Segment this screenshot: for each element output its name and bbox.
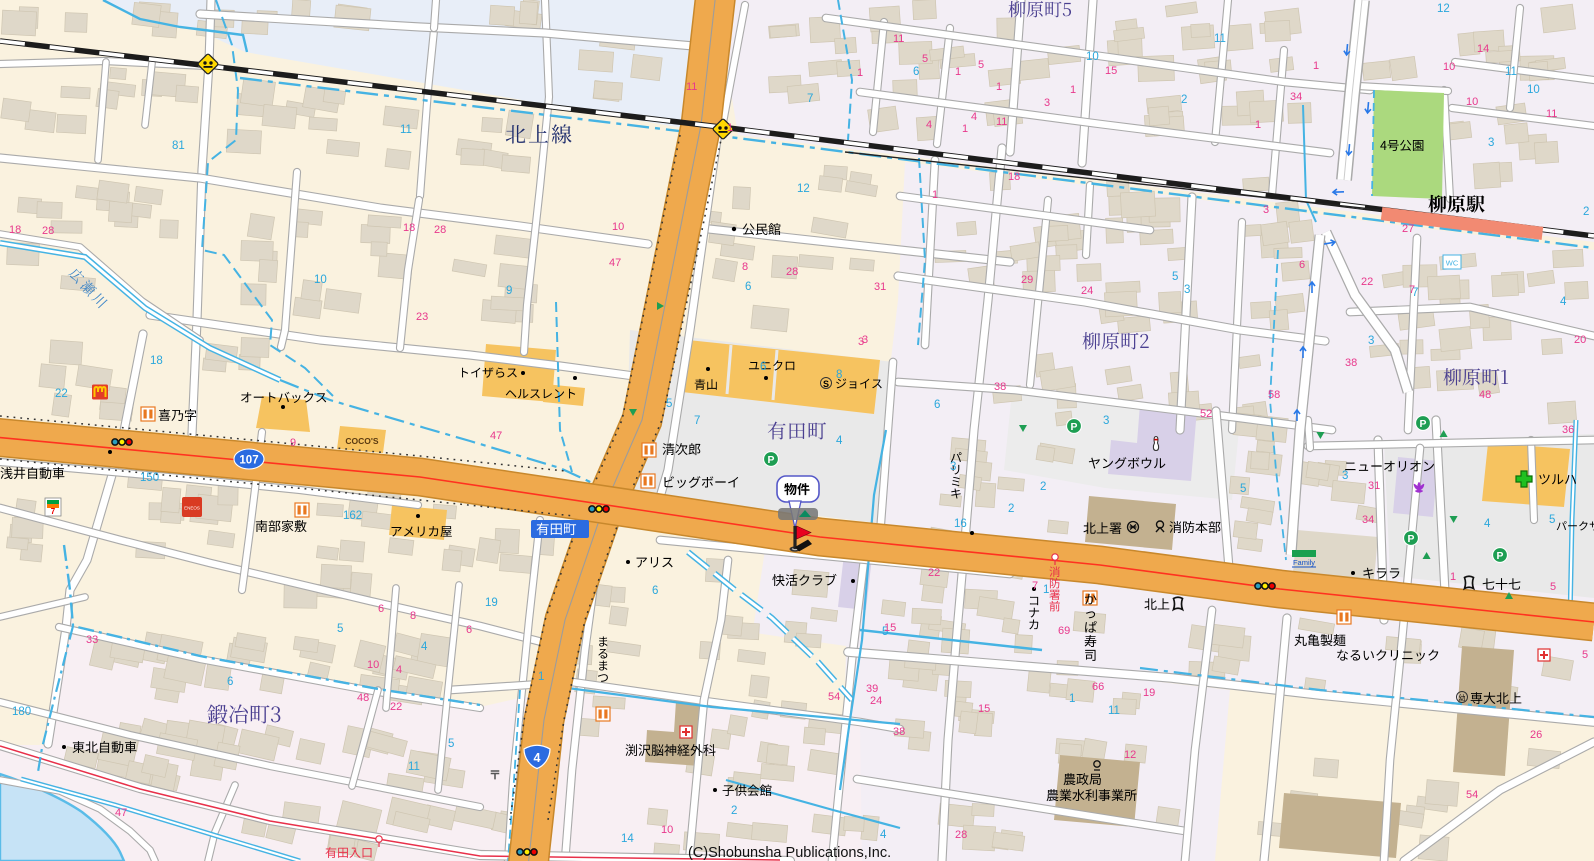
svg-text:31: 31 [1368,480,1380,492]
svg-text:11: 11 [996,116,1007,128]
svg-text:5: 5 [1240,483,1246,495]
svg-text:107: 107 [239,455,258,467]
svg-text:7: 7 [694,415,700,427]
svg-text:52: 52 [1200,408,1212,420]
svg-text:5: 5 [1172,271,1178,283]
svg-text:7: 7 [1032,580,1038,592]
svg-text:18: 18 [403,222,415,234]
svg-text:48: 48 [357,692,369,704]
svg-text:6: 6 [1299,259,1305,271]
svg-text:5: 5 [922,53,928,65]
svg-text:2: 2 [1008,503,1014,515]
svg-text:4: 4 [836,435,843,447]
svg-text:1: 1 [538,671,544,683]
svg-text:22: 22 [928,567,940,579]
svg-text:3: 3 [1044,97,1050,109]
svg-text:22: 22 [1361,276,1373,288]
svg-text:4: 4 [534,751,541,765]
svg-text:19: 19 [1143,687,1155,699]
svg-text:8: 8 [410,610,416,622]
svg-text:81: 81 [172,140,185,152]
svg-text:3: 3 [950,461,956,473]
svg-text:1: 1 [932,189,938,201]
svg-text:22: 22 [55,388,68,400]
svg-text:47: 47 [609,257,621,269]
svg-text:3: 3 [1342,470,1348,482]
svg-text:10: 10 [1443,61,1455,73]
svg-text:1: 1 [962,123,968,135]
svg-text:28: 28 [42,225,54,237]
svg-text:1: 1 [1070,84,1076,96]
svg-text:1: 1 [727,122,733,134]
svg-text:7: 7 [807,93,813,105]
svg-text:(C)Shobunsha Publications,Inc.: (C)Shobunsha Publications,Inc. [688,845,891,861]
svg-text:10: 10 [367,659,379,671]
svg-text:6: 6 [745,281,751,293]
svg-text:6: 6 [913,66,919,78]
svg-text:54: 54 [828,691,840,703]
svg-text:P: P [1408,534,1415,545]
svg-text:34: 34 [1290,91,1302,103]
svg-text:Family: Family [1293,558,1315,567]
svg-text:24: 24 [1081,285,1093,297]
svg-text:5: 5 [666,398,672,410]
svg-text:1: 1 [955,66,961,78]
svg-text:19: 19 [485,597,498,609]
svg-text:54: 54 [1466,789,1478,801]
svg-text:9: 9 [290,437,296,449]
svg-text:18: 18 [150,355,163,367]
svg-text:11: 11 [686,81,697,93]
svg-text:162: 162 [343,510,362,522]
svg-text:6: 6 [466,624,472,636]
svg-text:34: 34 [1362,514,1374,526]
svg-text:11: 11 [1546,108,1557,120]
svg-text:WC: WC [1446,259,1459,268]
svg-text:27: 27 [1402,223,1414,235]
svg-text:66: 66 [1092,681,1104,693]
svg-text:38: 38 [1345,357,1357,369]
svg-text:11: 11 [1108,705,1120,717]
svg-text:〒: 〒 [489,768,501,782]
svg-text:38: 38 [994,381,1006,393]
svg-text:8: 8 [742,261,748,273]
svg-text:1: 1 [1450,571,1456,583]
svg-text:12: 12 [1437,3,1450,15]
svg-text:39: 39 [866,683,878,695]
svg-text:2: 2 [1181,94,1187,106]
svg-text:5: 5 [1582,649,1588,661]
svg-text:11: 11 [400,124,412,136]
svg-text:10: 10 [1466,96,1478,108]
svg-text:9: 9 [506,285,512,297]
svg-text:P: P [1420,419,1427,430]
svg-text:16: 16 [954,518,967,530]
svg-text:3: 3 [1103,415,1109,427]
svg-text:11: 11 [1214,33,1226,45]
svg-text:11: 11 [893,33,904,45]
svg-text:69: 69 [1058,625,1070,637]
svg-text:4: 4 [971,111,977,123]
svg-text:20: 20 [1574,334,1586,346]
svg-text:15: 15 [884,622,896,634]
svg-text:8: 8 [836,369,842,381]
svg-text:1: 1 [857,67,863,79]
svg-text:6: 6 [934,399,940,411]
svg-text:1: 1 [1043,584,1049,596]
svg-text:10: 10 [314,274,327,286]
svg-text:2: 2 [1583,206,1589,218]
svg-text:5: 5 [978,59,984,71]
svg-text:26: 26 [1530,729,1542,741]
svg-text:5: 5 [1550,581,1556,593]
svg-text:5: 5 [448,738,454,750]
svg-text:38: 38 [893,726,905,738]
svg-text:3: 3 [1184,284,1190,296]
svg-text:6: 6 [378,603,384,615]
svg-text:3: 3 [862,334,868,346]
svg-text:2: 2 [1040,481,1046,493]
svg-text:4: 4 [1560,296,1567,308]
svg-text:1: 1 [1255,119,1261,131]
svg-text:18: 18 [1008,171,1020,183]
svg-text:3: 3 [1488,137,1494,149]
svg-text:6: 6 [227,676,233,688]
svg-text:18: 18 [9,224,21,236]
svg-text:1: 1 [1069,693,1075,705]
svg-text:29: 29 [1021,274,1033,286]
svg-text:4: 4 [396,664,402,676]
svg-text:6: 6 [652,585,658,597]
svg-text:48: 48 [1479,389,1491,401]
svg-text:28: 28 [955,829,967,841]
svg-text:P: P [1497,551,1504,562]
svg-text:3: 3 [1368,335,1374,347]
svg-text:3: 3 [1263,204,1269,216]
svg-text:11: 11 [408,761,420,773]
svg-text:36: 36 [1562,424,1574,436]
svg-text:28: 28 [434,224,446,236]
svg-text:28: 28 [786,266,798,278]
svg-text:P: P [768,455,775,466]
svg-text:4: 4 [880,829,887,841]
svg-text:15: 15 [1105,65,1117,77]
svg-text:2: 2 [731,805,737,817]
svg-text:7: 7 [1409,284,1415,296]
svg-text:15: 15 [978,703,990,715]
svg-text:4: 4 [421,641,428,653]
svg-text:47: 47 [115,807,127,819]
svg-text:22: 22 [390,701,402,713]
svg-text:幼: 幼 [1459,693,1466,702]
svg-text:24: 24 [870,695,882,707]
svg-text:23: 23 [416,311,428,323]
svg-text:10: 10 [1527,84,1540,96]
svg-text:10: 10 [1086,51,1099,63]
svg-text:7: 7 [51,507,56,516]
svg-text:14: 14 [621,833,634,845]
svg-text:5: 5 [337,623,343,635]
svg-text:5: 5 [1549,514,1555,526]
svg-text:4: 4 [926,119,932,131]
svg-text:11: 11 [1505,66,1517,78]
svg-text:P: P [1071,422,1078,433]
svg-text:10: 10 [612,221,624,233]
svg-text:12: 12 [1124,749,1136,761]
svg-text:33: 33 [86,634,98,646]
svg-text:58: 58 [1268,389,1280,401]
svg-text:180: 180 [12,706,31,718]
svg-text:150: 150 [140,472,159,484]
svg-text:S: S [823,379,829,389]
svg-text:14: 14 [1477,43,1489,55]
svg-text:47: 47 [490,430,502,442]
svg-text:COCO'S: COCO'S [345,436,379,446]
svg-text:ENEOS: ENEOS [184,506,200,511]
svg-text:4: 4 [1484,518,1491,530]
svg-text:10: 10 [661,824,673,836]
svg-text:12: 12 [797,183,810,195]
svg-text:1: 1 [1313,60,1319,72]
svg-text:1: 1 [996,81,1002,93]
svg-text:31: 31 [874,281,886,293]
svg-text:6: 6 [760,361,766,373]
